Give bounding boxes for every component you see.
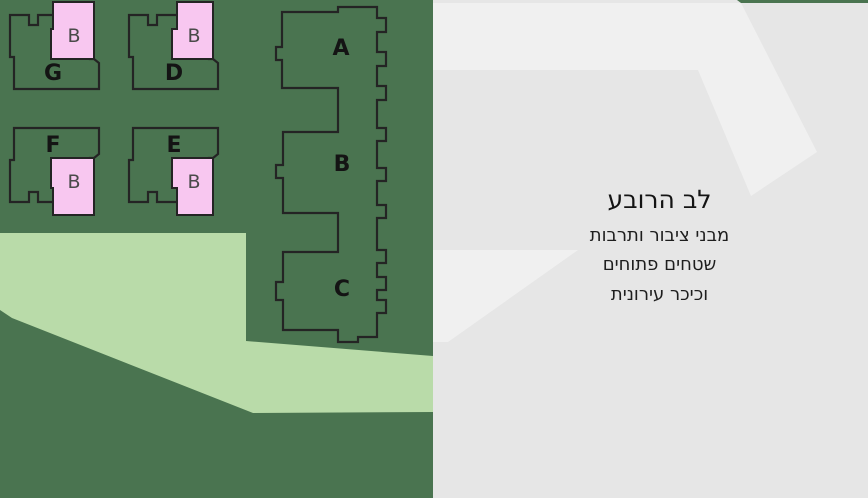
building-b-label: B [334,152,351,177]
site-plan-stage: G D F E A B C B B B B לב הרובע מבני ציבו… [0,0,868,498]
annex-label-e: B [187,171,200,193]
legend: לב הרובע מבני ציבור ותרבות שטחים פתוחים … [433,184,868,309]
annex-label-f: B [67,171,80,193]
building-c-label: C [334,277,350,302]
annex-label-d: B [187,25,200,47]
green-edge-sliver [737,0,868,3]
building-d-label: D [165,61,183,86]
annex-label-g: B [67,25,80,47]
legend-line-1: מבני ציבור ותרבות [451,221,868,250]
building-f-label: F [45,133,60,158]
building-a-label: A [332,36,349,61]
building-g-label: G [44,61,62,86]
legend-title: לב הרובע [451,184,868,215]
building-e-label: E [166,133,181,158]
legend-line-3: וכיכר עירונית [451,280,868,309]
legend-line-2: שטחים פתוחים [451,250,868,279]
